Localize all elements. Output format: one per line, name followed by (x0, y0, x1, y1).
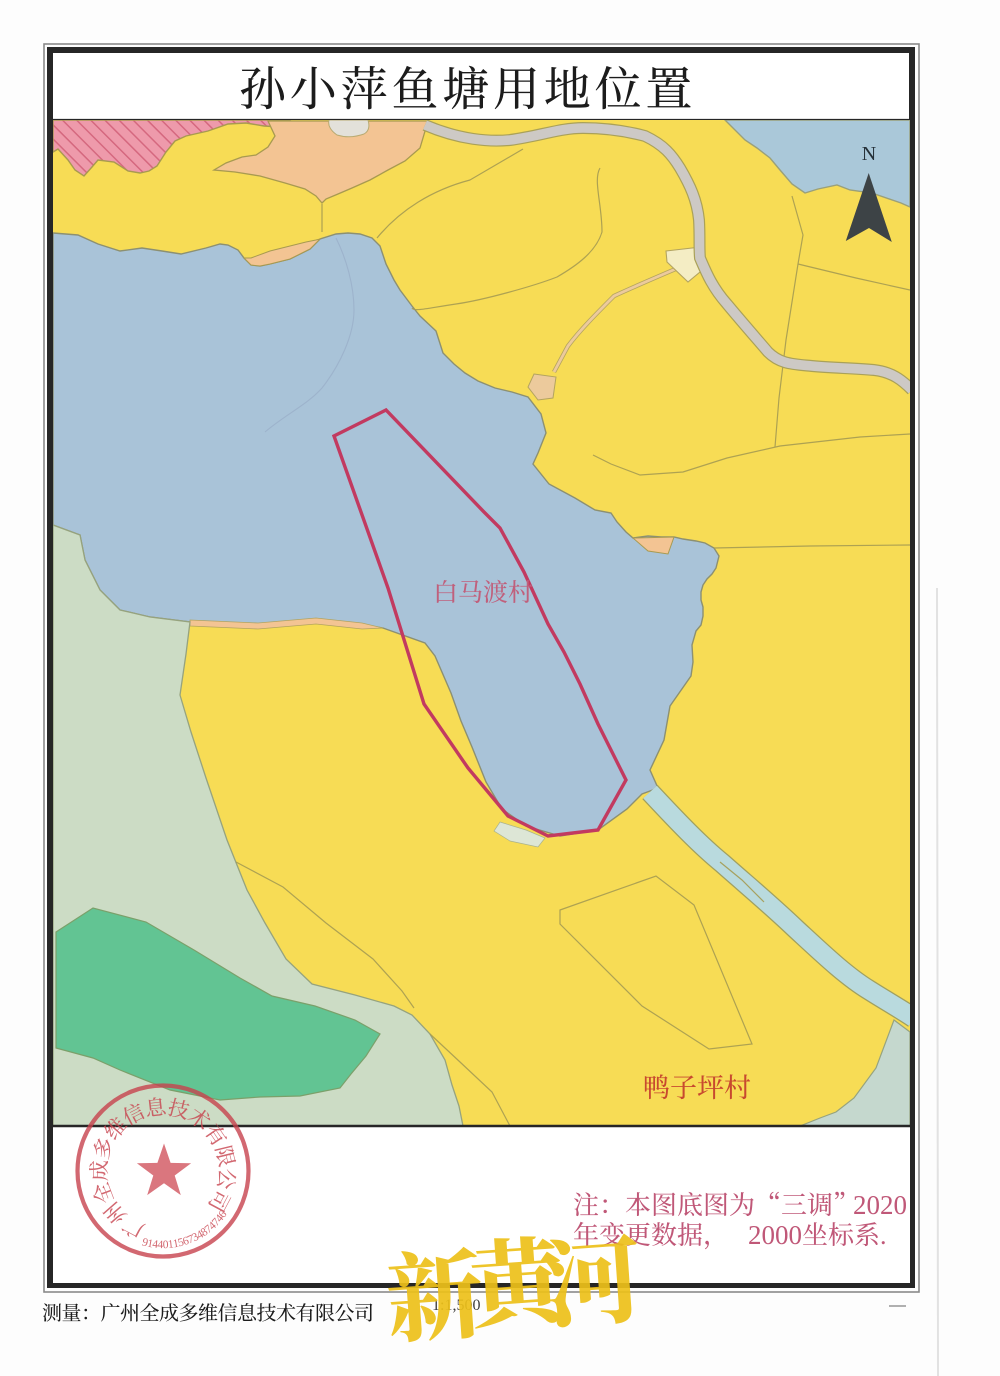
svg-text:2020: 2020 (853, 1190, 907, 1220)
svg-text:.: . (880, 1221, 887, 1250)
svg-text:2000: 2000 (748, 1220, 802, 1250)
svg-text:N: N (862, 143, 876, 165)
